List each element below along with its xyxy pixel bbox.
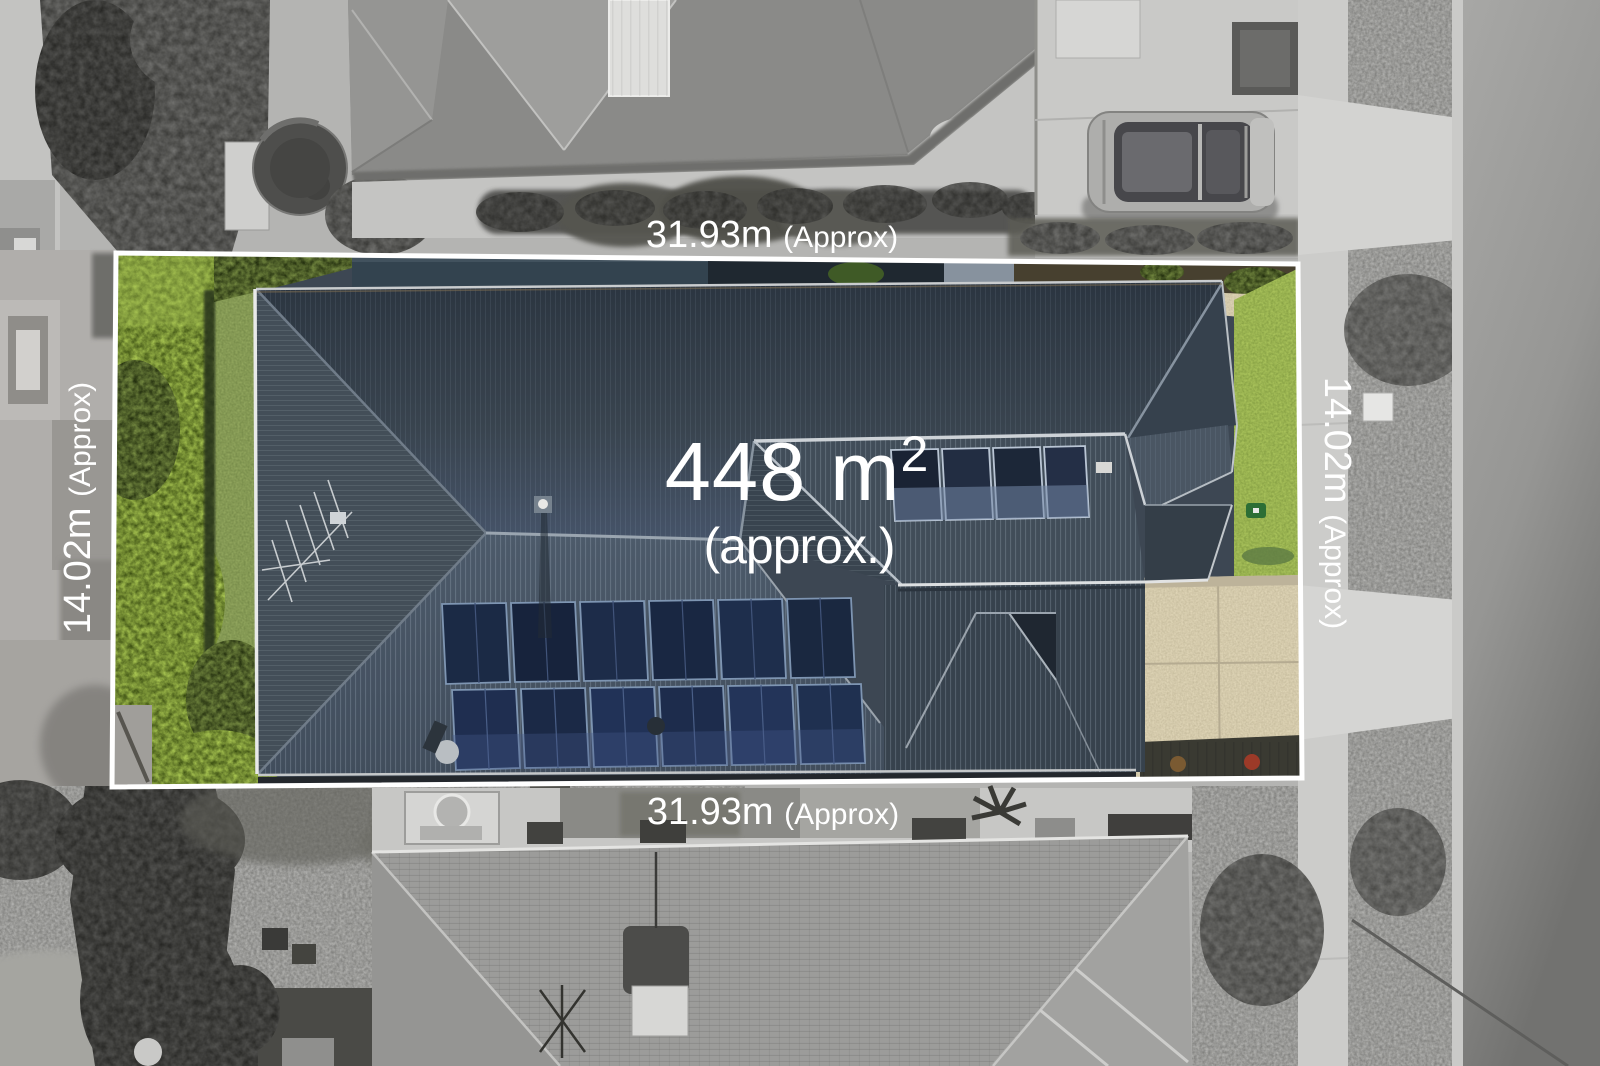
svg-text:14.02m (Approx): 14.02m (Approx)	[1316, 377, 1358, 629]
svg-text:31.93m (Approx): 31.93m (Approx)	[646, 214, 898, 256]
svg-text:31.93m (Approx): 31.93m (Approx)	[647, 791, 899, 833]
svg-text:14.02m (Approx): 14.02m (Approx)	[57, 382, 99, 634]
svg-text:(approx.): (approx.)	[703, 518, 894, 574]
svg-text:448 m2: 448 m2	[665, 425, 930, 518]
